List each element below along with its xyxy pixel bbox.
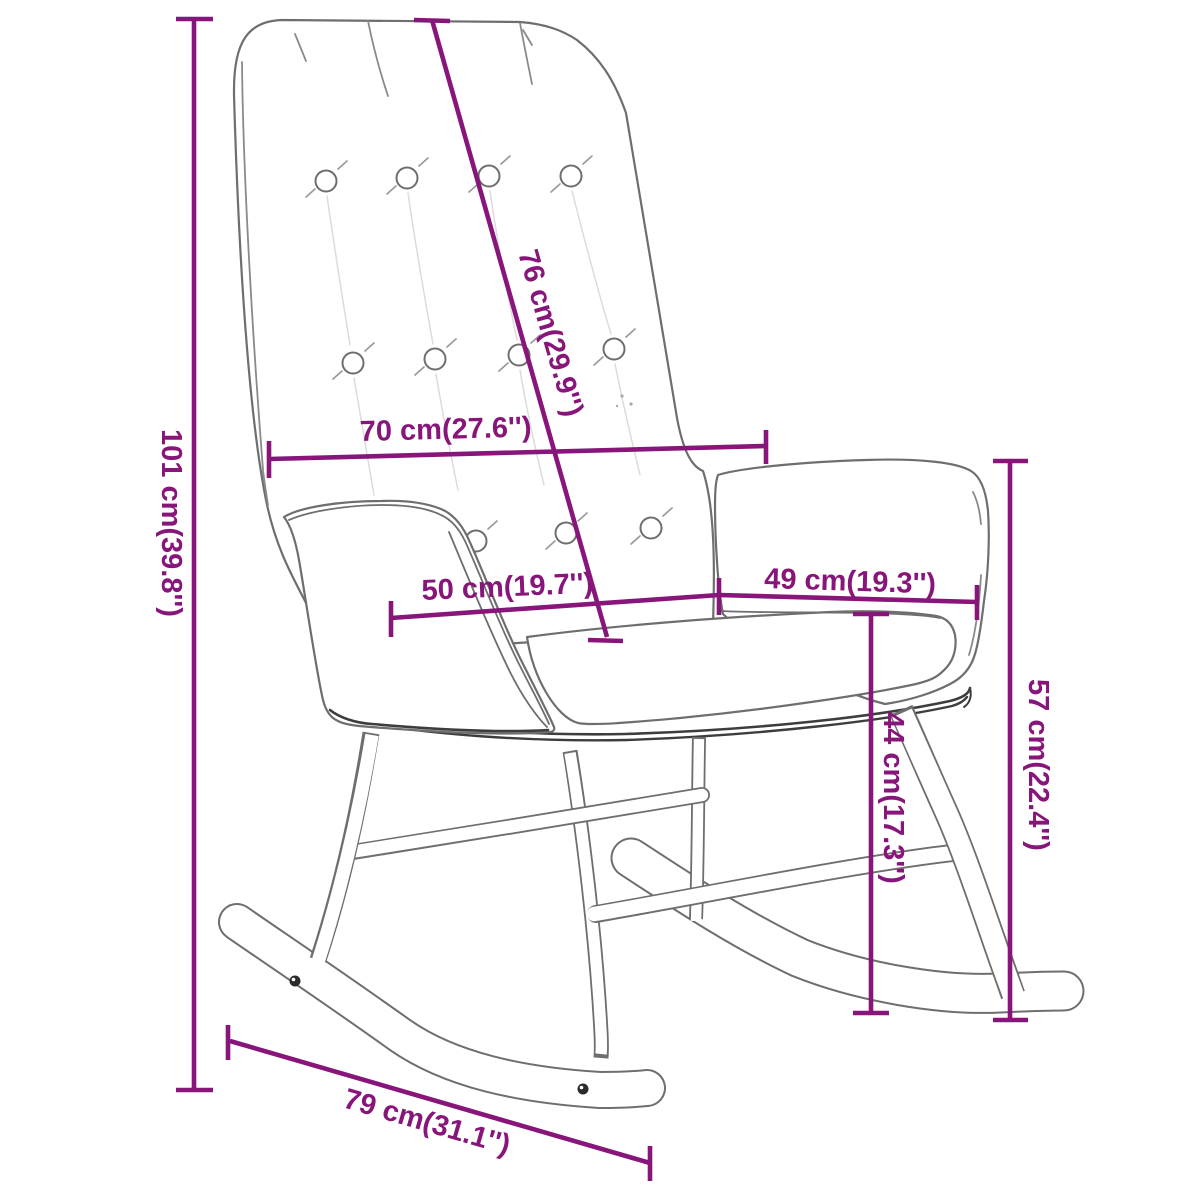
svg-text:70 cm(27.6''): 70 cm(27.6'')	[359, 412, 532, 448]
svg-text:57 cm(22.4''): 57 cm(22.4'')	[1022, 679, 1054, 851]
svg-text:101 cm(39.8''): 101 cm(39.8'')	[155, 429, 187, 617]
svg-text:49 cm(19.3''): 49 cm(19.3'')	[764, 563, 937, 600]
svg-text:44 cm(17.3''): 44 cm(17.3'')	[877, 712, 909, 884]
